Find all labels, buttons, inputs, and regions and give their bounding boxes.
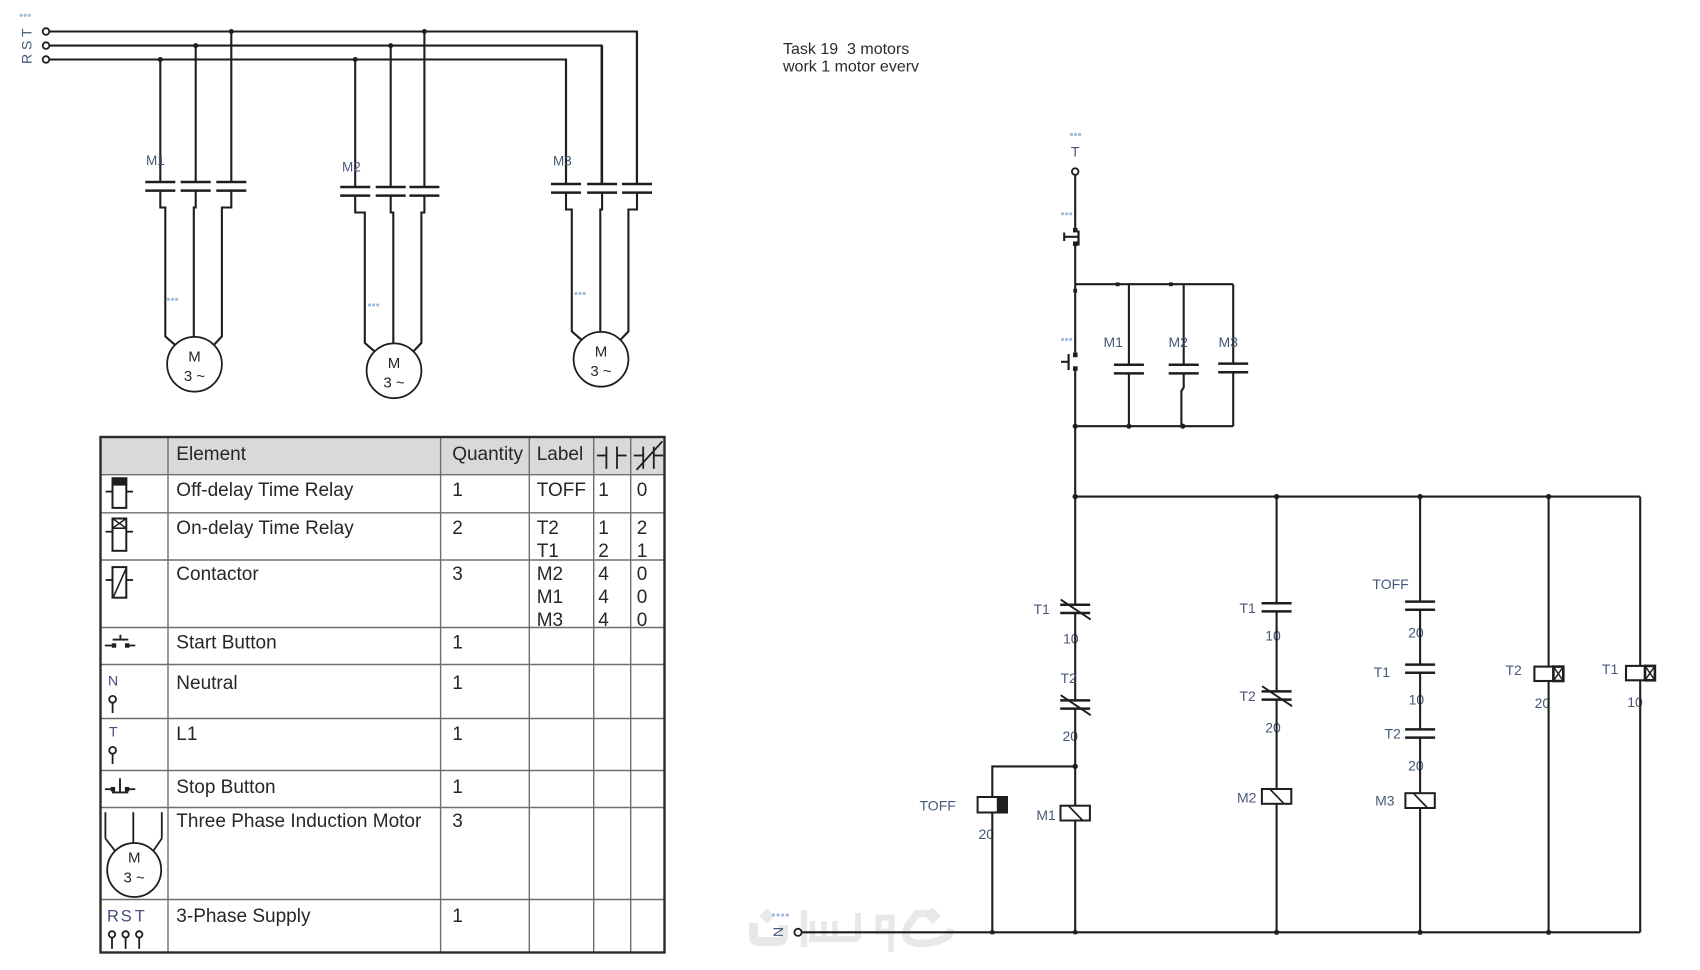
svg-text:1: 1	[452, 632, 463, 653]
svg-text:Stop Button: Stop Button	[176, 777, 275, 798]
svg-text:T1: T1	[1374, 664, 1391, 680]
svg-text:20: 20	[1408, 758, 1424, 774]
svg-text:M2: M2	[537, 564, 563, 585]
svg-text:2: 2	[637, 518, 648, 539]
svg-text:M: M	[128, 850, 141, 867]
svg-text:10: 10	[1063, 631, 1079, 647]
svg-text:Start Button: Start Button	[176, 632, 276, 653]
svg-text:S: S	[121, 908, 132, 926]
svg-text:3: 3	[452, 811, 463, 832]
svg-text:Contactor: Contactor	[176, 564, 259, 585]
svg-text:10: 10	[1265, 628, 1281, 644]
svg-text:T1: T1	[1240, 600, 1257, 616]
svg-text:2: 2	[452, 518, 463, 539]
svg-text:N: N	[770, 927, 786, 937]
svg-text:T1: T1	[1602, 661, 1619, 677]
svg-text:3 ~: 3 ~	[124, 870, 146, 887]
svg-text:1: 1	[452, 673, 463, 694]
svg-text:M1: M1	[1104, 334, 1124, 350]
svg-text:Neutral: Neutral	[176, 673, 237, 694]
svg-text:20: 20	[1408, 625, 1424, 641]
svg-text:T2: T2	[1385, 726, 1402, 742]
svg-text:3 ~: 3 ~	[184, 368, 206, 385]
svg-text:1: 1	[598, 480, 609, 501]
svg-text:L1: L1	[176, 724, 197, 745]
svg-text:1: 1	[452, 777, 463, 798]
svg-text:3: 3	[452, 564, 463, 585]
svg-text:2: 2	[598, 541, 609, 562]
svg-text:3-Phase Supply: 3-Phase Supply	[176, 906, 311, 927]
svg-text:T: T	[135, 908, 145, 926]
svg-text:R S T: R S T	[19, 28, 35, 64]
svg-text:20: 20	[1265, 720, 1281, 736]
svg-text:M3: M3	[1219, 334, 1239, 350]
svg-text:TOFF: TOFF	[537, 480, 586, 501]
svg-text:4: 4	[598, 610, 609, 631]
svg-text:Task 19 3 motors: Task 19 3 motors	[783, 41, 909, 58]
svg-text:M: M	[595, 343, 608, 360]
svg-text:1: 1	[598, 518, 609, 539]
svg-text:On-delay Time Relay: On-delay Time Relay	[176, 518, 354, 539]
svg-text:M1: M1	[146, 153, 165, 168]
svg-text:M1: M1	[1036, 807, 1056, 823]
svg-text:M2: M2	[342, 160, 361, 175]
svg-text:Element: Element	[176, 444, 246, 465]
svg-text:3 ~: 3 ~	[383, 374, 405, 391]
svg-text:M2: M2	[1237, 790, 1257, 806]
svg-text:T2: T2	[1061, 670, 1078, 686]
svg-text:1: 1	[637, 541, 648, 562]
svg-text:Label: Label	[537, 444, 584, 465]
svg-text:TOFF: TOFF	[1372, 576, 1408, 592]
svg-text:M3: M3	[553, 154, 572, 169]
svg-text:M3: M3	[537, 610, 563, 631]
svg-text:work 1 motor everv: work 1 motor everv	[782, 59, 919, 76]
svg-text:0: 0	[637, 587, 648, 608]
svg-text:4: 4	[598, 587, 609, 608]
svg-text:10: 10	[1409, 692, 1425, 708]
svg-text:3 ~: 3 ~	[590, 363, 612, 380]
svg-text:1: 1	[452, 480, 463, 501]
svg-text:0: 0	[637, 610, 648, 631]
svg-text:0: 0	[637, 564, 648, 585]
svg-text:R: R	[107, 908, 119, 926]
svg-text:T2: T2	[1240, 688, 1257, 704]
svg-text:T1: T1	[1034, 601, 1051, 617]
svg-text:Quantity: Quantity	[452, 444, 523, 465]
svg-text:M1: M1	[537, 587, 563, 608]
svg-text:1: 1	[452, 724, 463, 745]
svg-text:N: N	[108, 673, 118, 689]
svg-text:TOFF: TOFF	[920, 798, 956, 814]
svg-text:1: 1	[452, 906, 463, 927]
svg-text:0: 0	[637, 480, 648, 501]
svg-text:T: T	[109, 724, 118, 740]
svg-text:M3: M3	[1375, 793, 1395, 809]
svg-text:T: T	[1071, 143, 1080, 159]
svg-text:T1: T1	[537, 541, 559, 562]
svg-text:M2: M2	[1169, 334, 1189, 350]
svg-text:M: M	[188, 348, 201, 365]
svg-text:T2: T2	[537, 518, 559, 539]
svg-text:4: 4	[598, 564, 609, 585]
svg-text:T2: T2	[1506, 662, 1523, 678]
svg-text:Off-delay Time Relay: Off-delay Time Relay	[176, 480, 354, 501]
svg-text:M: M	[388, 355, 401, 372]
svg-text:Three Phase Induction Motor: Three Phase Induction Motor	[176, 811, 422, 832]
